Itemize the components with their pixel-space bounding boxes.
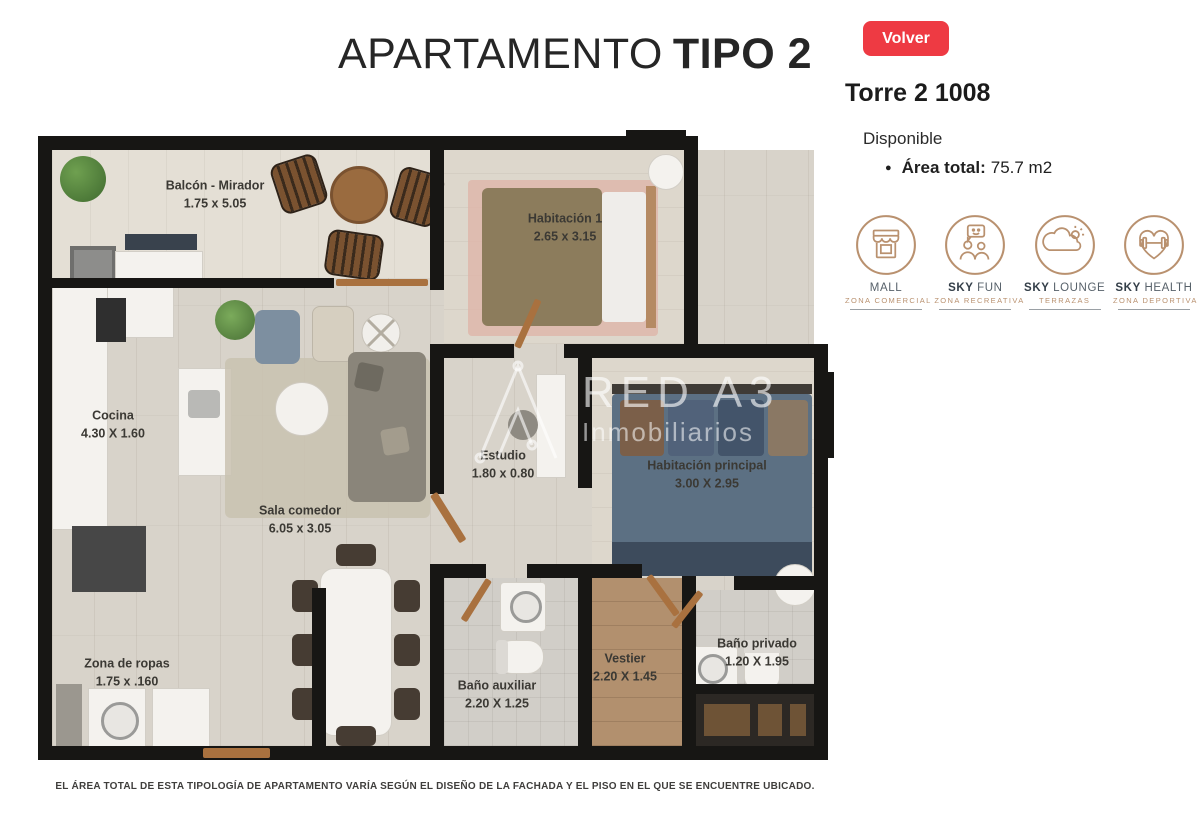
dining-chair [394, 580, 420, 612]
unit-title: Torre 2 1008 [845, 79, 990, 108]
amenity-title: MALL [845, 282, 927, 294]
wall [682, 576, 694, 590]
amenity-sky-fun: SKY FUN ZONA RECREATIVA [934, 213, 1016, 310]
bullet-icon: ● [885, 162, 892, 174]
amenity-sky-health: SKY HEALTH ZONA DEPORTIVA [1113, 213, 1195, 310]
wall [430, 136, 444, 290]
coffee-table [275, 382, 329, 436]
room-label-aux-bath: Baño auxiliar2.20 X 1.25 [458, 678, 537, 713]
amenity-underline [1029, 309, 1101, 310]
wall [684, 136, 698, 358]
island-sink [188, 390, 220, 418]
laundry-sink [152, 688, 210, 750]
amenity-title: SKY FUN [934, 282, 1016, 294]
window [626, 130, 686, 138]
availability-status: Disponible [863, 129, 942, 149]
closet-unit [696, 694, 814, 746]
sofa-pillow [354, 362, 385, 393]
page-title: APARTAMENTOTIPO 2 [290, 30, 860, 79]
mall-icon [854, 213, 918, 277]
dining-chair [394, 634, 420, 666]
wall [682, 684, 828, 694]
wall-wood-insert [203, 748, 270, 758]
room-label-walkin: Vestier2.20 X 1.45 [593, 651, 657, 686]
sky-health-icon [1122, 213, 1186, 277]
amenity-mall: MALL ZONA COMERCIAL [845, 213, 927, 310]
amenity-subtitle: TERRAZAS [1024, 296, 1106, 305]
page-title-bold: TIPO 2 [673, 30, 812, 78]
dining-chair [336, 544, 376, 566]
wall [592, 564, 642, 578]
armchair-cream [312, 306, 354, 362]
watermark: RED A3 Inmobiliarios [468, 350, 781, 468]
plant [60, 156, 106, 202]
balcony-door [336, 279, 428, 286]
amenity-underline [939, 309, 1011, 310]
watermark-line2: Inmobiliarios [582, 417, 781, 448]
wall [527, 564, 578, 578]
ceiling-fan [360, 312, 402, 354]
dining-chair [336, 726, 376, 746]
room-label-private-bath: Baño privado1.20 X 1.95 [717, 636, 797, 671]
amenity-subtitle: ZONA COMERCIAL [845, 296, 927, 305]
wall [52, 278, 334, 288]
armchair-blue [255, 310, 300, 364]
reda3-logo-icon [468, 350, 568, 468]
room-label-balcony: Balcón - Mirador1.75 x 5.05 [166, 178, 265, 213]
room-label-kitchen: Cocina4.30 X 1.60 [81, 408, 145, 443]
area-value: 75.7 m2 [991, 158, 1052, 177]
balcony-table [330, 166, 388, 224]
amenity-title: SKY HEALTH [1113, 282, 1195, 294]
amenity-title: SKY LOUNGE [1024, 282, 1106, 294]
wall [734, 576, 828, 590]
amenity-underline [1118, 309, 1190, 310]
bedroom1-headboard [646, 186, 656, 328]
watermark-line1: RED A3 [582, 370, 781, 416]
wall [430, 564, 444, 758]
media-bench [125, 234, 197, 250]
bedroom1-side-table [648, 154, 684, 190]
kitchen-island [178, 368, 232, 476]
sky-lounge-icon [1033, 213, 1097, 277]
sky-fun-icon [943, 213, 1007, 277]
wall [38, 136, 698, 150]
dining-chair [394, 688, 420, 720]
wall [38, 136, 52, 760]
window [826, 372, 834, 458]
fridge [72, 526, 146, 592]
room-label-living: Sala comedor6.05 x 3.05 [259, 503, 341, 538]
bedroom1-pillows [602, 192, 646, 322]
amenity-subtitle: ZONA DEPORTIVA [1113, 296, 1195, 305]
balcony-chair [323, 228, 385, 281]
aux-toilet-tank [496, 640, 508, 674]
wall [430, 344, 444, 494]
room-label-bedroom1: Habitación 12.65 x 3.15 [528, 211, 602, 246]
amenity-subtitle: ZONA RECREATIVA [934, 296, 1016, 305]
wall [578, 564, 592, 758]
back-button[interactable]: Volver [863, 21, 949, 56]
floor-plan: Balcón - Mirador1.75 x 5.05 Habitación 1… [30, 128, 840, 773]
amenities-row: MALL ZONA COMERCIAL SKY FUN ZONA RECREAT… [845, 213, 1195, 310]
wall [312, 588, 326, 758]
plant [215, 300, 255, 340]
disclaimer: EL ÁREA TOTAL DE ESTA TIPOLOGÍA DE APART… [30, 781, 840, 792]
page-title-regular: APARTAMENTO [338, 30, 663, 78]
washer-drum [101, 702, 139, 740]
bedroom1-bed [482, 188, 602, 326]
amenity-underline [850, 309, 922, 310]
amenity-sky-lounge: SKY LOUNGE TERRAZAS [1024, 213, 1106, 310]
room-label-laundry: Zona de ropas1.75 x .160 [84, 656, 169, 691]
wall [444, 564, 486, 578]
sofa-pillow [380, 426, 410, 456]
aux-sink-basin [510, 591, 542, 623]
area-total: ●Área total:75.7 m2 [885, 158, 1052, 178]
dining-table [320, 568, 392, 736]
stove [96, 298, 126, 342]
